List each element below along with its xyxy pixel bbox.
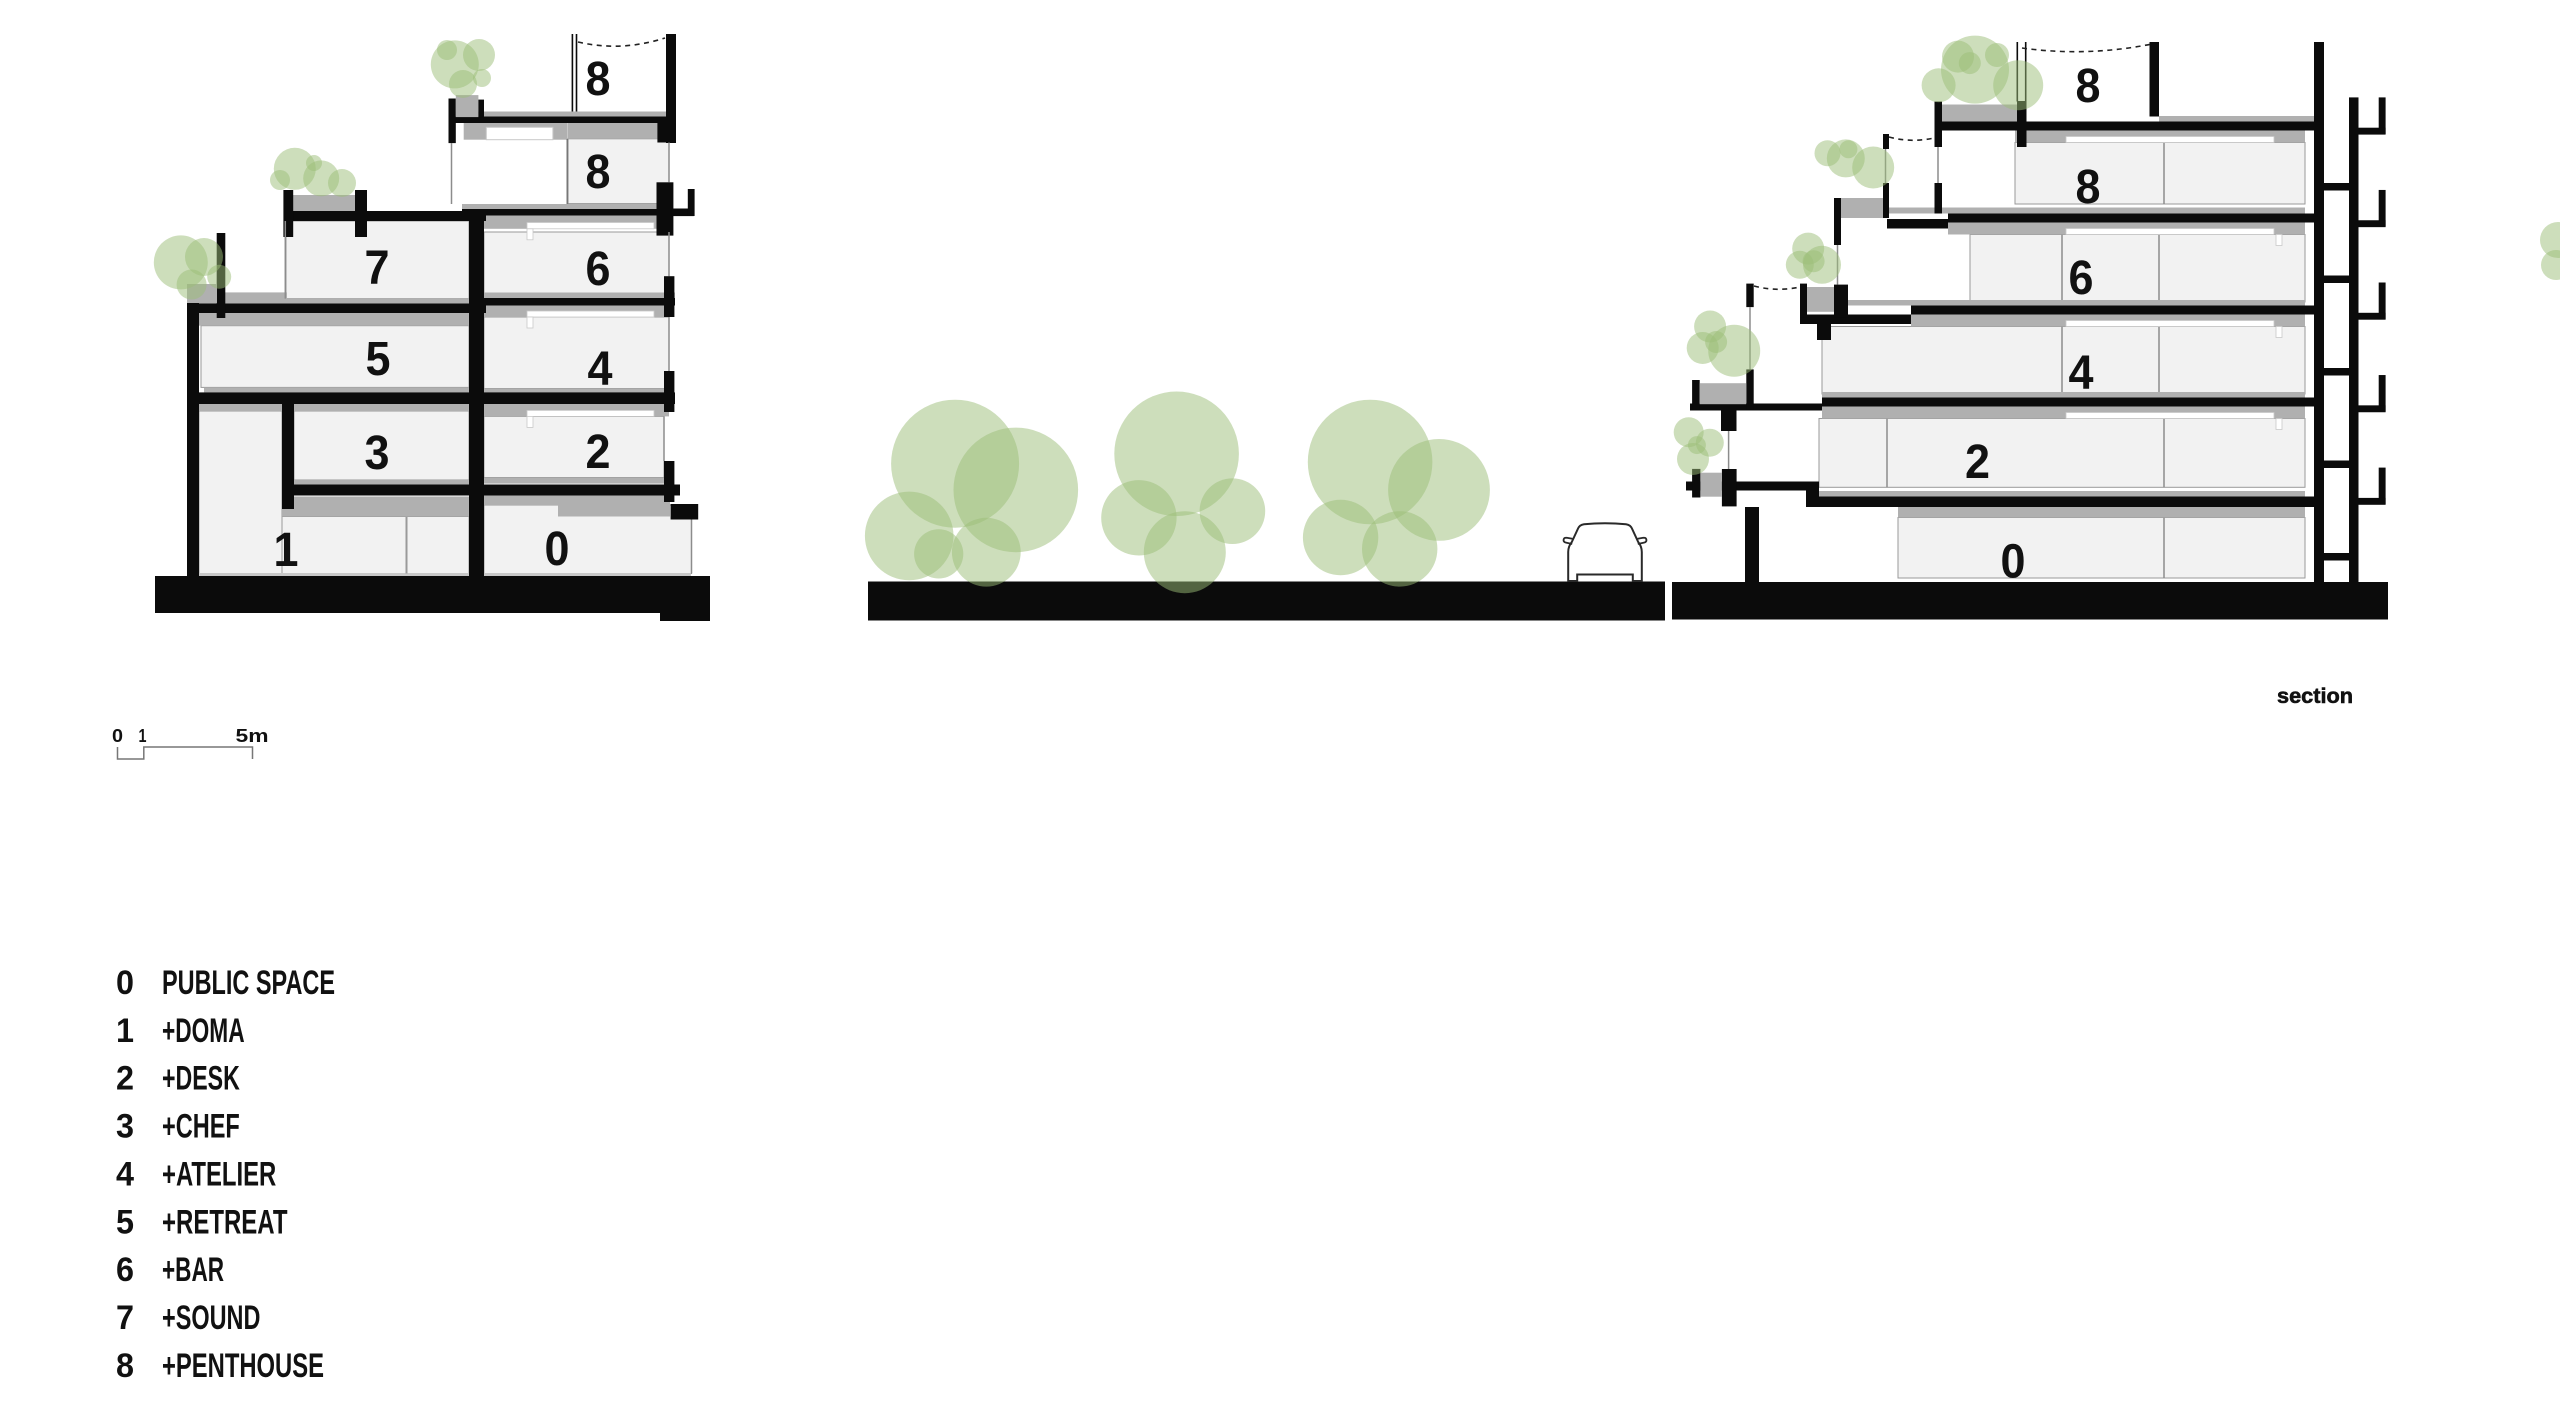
svg-text:5m: 5m: [236, 726, 269, 746]
svg-text:2: 2: [586, 426, 611, 479]
svg-text:+BAR: +BAR: [162, 1251, 224, 1289]
svg-text:3: 3: [116, 1108, 134, 1146]
svg-text:+SOUND: +SOUND: [162, 1299, 260, 1337]
svg-text:4: 4: [116, 1155, 134, 1193]
svg-text:6: 6: [116, 1251, 134, 1289]
svg-text:+DOMA: +DOMA: [162, 1012, 245, 1050]
svg-text:8: 8: [586, 53, 611, 106]
svg-text:7: 7: [116, 1299, 134, 1337]
svg-text:PUBLIC SPACE: PUBLIC SPACE: [162, 964, 335, 1002]
svg-text:2: 2: [116, 1060, 134, 1098]
svg-text:0: 0: [112, 726, 123, 746]
svg-text:6: 6: [2069, 252, 2094, 305]
svg-text:5: 5: [116, 1203, 134, 1241]
svg-text:2: 2: [1965, 436, 1990, 489]
svg-text:8: 8: [586, 146, 611, 199]
svg-text:section: section: [2277, 684, 2353, 708]
svg-text:0: 0: [545, 523, 570, 576]
svg-text:8: 8: [2076, 60, 2101, 113]
svg-text:+ATELIER: +ATELIER: [162, 1155, 276, 1193]
svg-text:0: 0: [2001, 536, 2026, 589]
svg-text:0: 0: [116, 964, 134, 1002]
svg-text:+DESK: +DESK: [162, 1060, 240, 1098]
svg-text:7: 7: [365, 242, 390, 295]
svg-text:1: 1: [139, 726, 147, 746]
svg-text:+CHEF: +CHEF: [162, 1108, 240, 1146]
svg-text:6: 6: [586, 243, 611, 296]
svg-text:+RETREAT: +RETREAT: [162, 1203, 288, 1241]
svg-text:8: 8: [116, 1347, 134, 1385]
svg-text:1: 1: [116, 1012, 134, 1050]
svg-text:1: 1: [274, 524, 299, 577]
svg-text:3: 3: [365, 427, 390, 480]
svg-text:+PENTHOUSE: +PENTHOUSE: [162, 1347, 324, 1385]
svg-text:8: 8: [2076, 161, 2101, 214]
svg-text:4: 4: [588, 343, 613, 396]
svg-text:5: 5: [366, 333, 391, 386]
